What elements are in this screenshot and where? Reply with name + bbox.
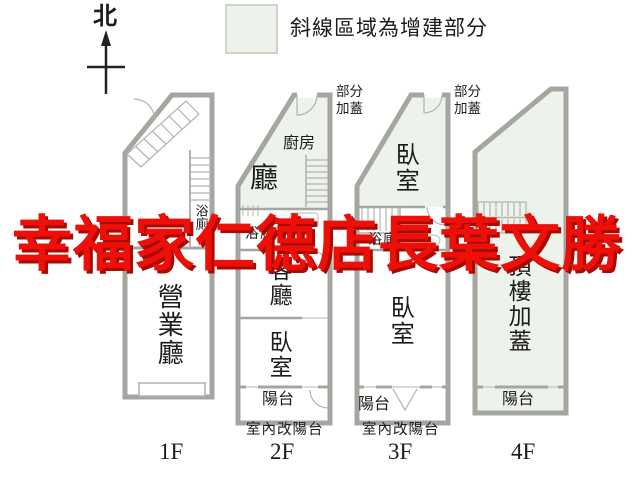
room-label-1f-hall: 營業廳 [155, 283, 182, 367]
note-3f: 室內改陽台 [362, 423, 440, 438]
room-label-4f-balcony: 陽台 [502, 392, 534, 409]
legend-swatch [225, 4, 278, 54]
room-label-2f-hall: 廳 [250, 164, 278, 193]
floor-label-1f: 1F [159, 440, 183, 464]
partial-cover-note-left: 部分 加蓋 [336, 84, 363, 118]
room-label-2f-balcony: 陽台 [262, 392, 294, 409]
compass-north-label: 北 [93, 5, 117, 30]
floor-label-4f: 4F [511, 440, 535, 464]
room-label-3f-bedroom-top: 臥室 [391, 142, 416, 194]
room-label-3f-bedroom: 臥室 [386, 295, 411, 347]
agent-watermark: 幸福家仁德店長葉文勝 [12, 196, 640, 283]
room-label-3f-balcony: 陽台 [358, 397, 390, 414]
floor-label-2f: 2F [270, 440, 294, 464]
floorplan-canvas: 北 斜線區域為增建部分 部分 加蓋 部分 加蓋 浴廁 營業廳 1F 廚房 廳 浴… [0, 0, 640, 480]
room-label-2f-kitchen: 廚房 [283, 136, 315, 153]
note-2f: 室內改陽台 [246, 423, 324, 438]
legend-text: 斜線區域為增建部分 [290, 17, 488, 39]
room-label-2f-bedroom: 臥室 [266, 330, 290, 380]
partial-cover-note-right: 部分 加蓋 [454, 84, 481, 118]
floor-label-3f: 3F [388, 440, 412, 464]
north-arrow-icon [87, 30, 125, 94]
